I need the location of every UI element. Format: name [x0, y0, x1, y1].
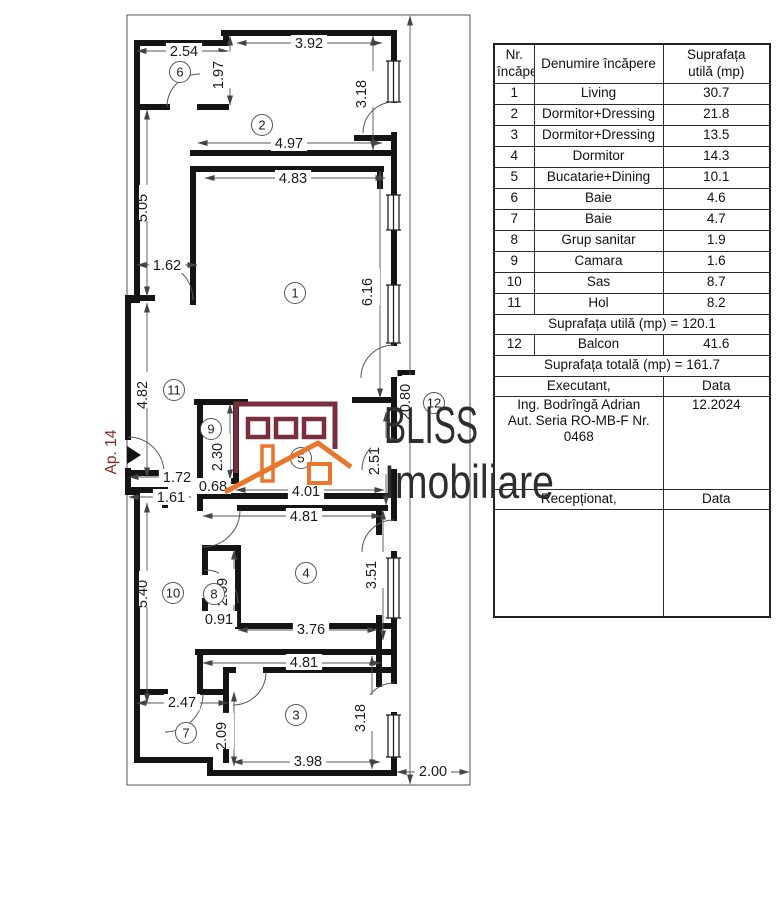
svg-text:2.00: 2.00: [419, 764, 447, 780]
svg-text:7: 7: [182, 726, 189, 741]
svg-text:0.91: 0.91: [205, 612, 233, 628]
floor-plan-page: Nr.încăpereDenumire încăpereSuprafațauti…: [0, 0, 778, 900]
dimension: 2.54: [137, 43, 228, 60]
dimension: 3.76: [238, 621, 377, 638]
room-marker: 8: [204, 584, 225, 605]
dimension: 4.81: [203, 654, 381, 671]
table-row: 2Dormitor+Dressing21.8: [494, 104, 770, 125]
table-cell: 10: [494, 272, 534, 293]
walls: [128, 33, 412, 773]
area-table: Nr.încăpereDenumire încăpereSuprafațauti…: [493, 43, 769, 615]
svg-text:3.76: 3.76: [297, 622, 325, 638]
dimension: 2.51: [367, 412, 387, 505]
table-row: 1Living30.7: [494, 83, 770, 104]
svg-text:3.92: 3.92: [295, 36, 323, 52]
dimension: 1.97: [211, 36, 231, 105]
table-cell: 7: [494, 209, 534, 230]
table-cell: 1.9: [663, 230, 770, 251]
dimension: 2.00: [397, 763, 469, 780]
table-row: 7Baie4.7: [494, 209, 770, 230]
receptionat-label: Recepționat,: [494, 489, 663, 509]
table-row: 9Camara1.6: [494, 251, 770, 272]
table-cell: 41.6: [663, 334, 770, 355]
room-marker: 3: [286, 705, 307, 726]
plot-boundary: [127, 15, 470, 785]
svg-text:4.82: 4.82: [135, 381, 151, 409]
svg-text:4.97: 4.97: [275, 136, 303, 152]
dimension-labels: 2.541.973.923.184.974.835.051.626.164.82…: [129, 16, 469, 784]
svg-text:4.81: 4.81: [290, 655, 318, 671]
room-marker: 12: [424, 393, 445, 414]
svg-text:1.97: 1.97: [211, 61, 227, 89]
room-marker: 1: [285, 283, 306, 304]
table-row: 8Grup sanitar1.9: [494, 230, 770, 251]
dimension: 3.51: [364, 510, 384, 640]
column-header: Denumire încăpere: [534, 44, 663, 83]
table-cell: 6: [494, 188, 534, 209]
table-cell: Grup sanitar: [534, 230, 663, 251]
dimension: 1.72: [129, 469, 195, 486]
column-header: Nr.încăpere: [494, 44, 534, 83]
svg-text:3.18: 3.18: [353, 704, 369, 732]
svg-text:2.47: 2.47: [168, 695, 196, 711]
table-cell: Baie: [534, 209, 663, 230]
room-marker: 2: [252, 115, 273, 136]
data-label: Data: [663, 376, 770, 396]
svg-text:1.61: 1.61: [157, 490, 185, 506]
svg-text:4.81: 4.81: [290, 509, 318, 525]
table-cell: 30.7: [663, 83, 770, 104]
svg-text:5.40: 5.40: [135, 580, 151, 608]
room-marker: 10: [163, 583, 184, 604]
table-cell: 1: [494, 83, 534, 104]
svg-text:3.51: 3.51: [364, 561, 380, 589]
table-row: 11Hol8.2: [494, 293, 770, 314]
svg-text:3.98: 3.98: [294, 754, 322, 770]
svg-text:6.16: 6.16: [360, 278, 376, 306]
useful-total-row: Suprafața utilă (mp) = 120.1: [494, 314, 770, 334]
svg-text:4.01: 4.01: [292, 484, 320, 500]
table-cell: 13.5: [663, 125, 770, 146]
date-value: 12.2024: [663, 396, 770, 489]
table-cell: Balcon: [534, 334, 663, 355]
svg-text:9: 9: [207, 422, 214, 437]
dimension: 2.09: [215, 550, 235, 624]
signature-date-space: [663, 509, 770, 617]
table-cell: Dormitor+Dressing: [534, 125, 663, 146]
table-row: 4Dormitor14.3: [494, 146, 770, 167]
svg-text:2.09: 2.09: [214, 722, 230, 750]
table-cell: 4.7: [663, 209, 770, 230]
dimension: 0.91: [201, 611, 237, 628]
svg-text:5: 5: [297, 451, 304, 466]
svg-text:3.18: 3.18: [354, 80, 370, 108]
dimension: 4.01: [236, 483, 384, 500]
dimension: 1.61: [129, 489, 191, 506]
dimension: 2.09: [214, 692, 234, 766]
svg-text:1: 1: [291, 286, 298, 301]
svg-text:8: 8: [210, 587, 217, 602]
windows-and-doors: [128, 61, 401, 757]
room-marker: 4: [296, 563, 317, 584]
table-cell: 2: [494, 104, 534, 125]
dimension: 4.81: [203, 508, 381, 525]
table-cell: Hol: [534, 293, 663, 314]
svg-text:2.30: 2.30: [210, 443, 226, 471]
grand-total-row: Suprafața totală (mp) = 161.7: [494, 355, 770, 376]
svg-text:20.80: 20.80: [398, 384, 414, 420]
table-cell: Camara: [534, 251, 663, 272]
table-cell: 1.6: [663, 251, 770, 272]
table-cell: Baie: [534, 188, 663, 209]
table-cell: 4.6: [663, 188, 770, 209]
dimension: 20.80: [398, 16, 418, 784]
room-marker: 9: [201, 419, 222, 440]
entry-arrow-icon: [127, 446, 141, 464]
dimension: 0.68: [195, 478, 231, 495]
table-row: 5Bucatarie+Dining10.1: [494, 167, 770, 188]
table-cell: Sas: [534, 272, 663, 293]
table-cell: Dormitor: [534, 146, 663, 167]
logo-wordmark-line1: BLISS: [384, 397, 478, 455]
table-cell: 8.2: [663, 293, 770, 314]
executant-name: Ing. Bodrîngă AdrianAut. Seria RO-MB-F N…: [494, 396, 663, 489]
dimension: 4.83: [205, 170, 385, 187]
dimension: 5.05: [135, 110, 155, 296]
table-cell: 21.8: [663, 104, 770, 125]
table-cell: 4: [494, 146, 534, 167]
executant-label: Executant,: [494, 376, 663, 396]
dimension: 4.82: [135, 303, 155, 477]
table-cell: 12: [494, 334, 534, 355]
table-row: 3Dormitor+Dressing13.5: [494, 125, 770, 146]
dimension: 3.92: [237, 35, 382, 52]
room-marker: 6: [170, 62, 191, 83]
svg-text:3: 3: [292, 708, 299, 723]
table-row: 10Sas8.7: [494, 272, 770, 293]
dimension: 5.40: [135, 503, 155, 703]
table-row: 12Balcon41.6: [494, 334, 770, 355]
column-header: Suprafațautilă (mp): [663, 44, 770, 83]
svg-text:4.83: 4.83: [279, 171, 307, 187]
room-marker: 7: [176, 723, 197, 744]
svg-text:12: 12: [427, 396, 441, 411]
svg-text:4: 4: [302, 566, 309, 581]
svg-text:2.54: 2.54: [170, 44, 198, 60]
svg-text:2: 2: [258, 118, 265, 133]
dimension: 3.18: [353, 656, 373, 769]
dimension: 2.47: [137, 694, 228, 711]
svg-text:10: 10: [166, 586, 180, 601]
table-cell: 8.7: [663, 272, 770, 293]
table-cell: 5: [494, 167, 534, 188]
svg-text:6: 6: [176, 65, 183, 80]
room-marker: 5: [291, 448, 312, 469]
table-cell: 11: [494, 293, 534, 314]
table-cell: Bucatarie+Dining: [534, 167, 663, 188]
apartment-entry-label: Ap. 14: [103, 429, 120, 474]
table-cell: 14.3: [663, 146, 770, 167]
logo-house-icon: [225, 404, 351, 492]
room-markers: 123456789101112: [163, 62, 445, 744]
room-marker: 11: [164, 380, 185, 401]
dimension: 3.18: [354, 36, 374, 150]
signature-space: [494, 509, 663, 617]
apartment-entry: Ap. 14: [103, 429, 141, 474]
table-cell: Dormitor+Dressing: [534, 104, 663, 125]
svg-text:1.62: 1.62: [153, 258, 181, 274]
receptionat-data-label: Data: [663, 489, 770, 509]
dimension: 1.62: [137, 257, 197, 274]
svg-text:2.09: 2.09: [215, 578, 231, 606]
table-cell: Living: [534, 83, 663, 104]
svg-text:11: 11: [167, 383, 181, 398]
svg-text:0.68: 0.68: [199, 479, 227, 495]
dimension: 6.16: [360, 171, 380, 398]
dimension: 2.30: [210, 404, 230, 479]
table-cell: 9: [494, 251, 534, 272]
svg-text:5.05: 5.05: [135, 194, 151, 222]
dimension: 4.97: [198, 135, 382, 152]
table-cell: 10.1: [663, 167, 770, 188]
svg-text:1.72: 1.72: [163, 470, 191, 486]
table-cell: 8: [494, 230, 534, 251]
table-cell: 3: [494, 125, 534, 146]
dimension: 3.98: [233, 753, 380, 770]
table-row: 6Baie4.6: [494, 188, 770, 209]
svg-text:2.51: 2.51: [367, 447, 383, 475]
